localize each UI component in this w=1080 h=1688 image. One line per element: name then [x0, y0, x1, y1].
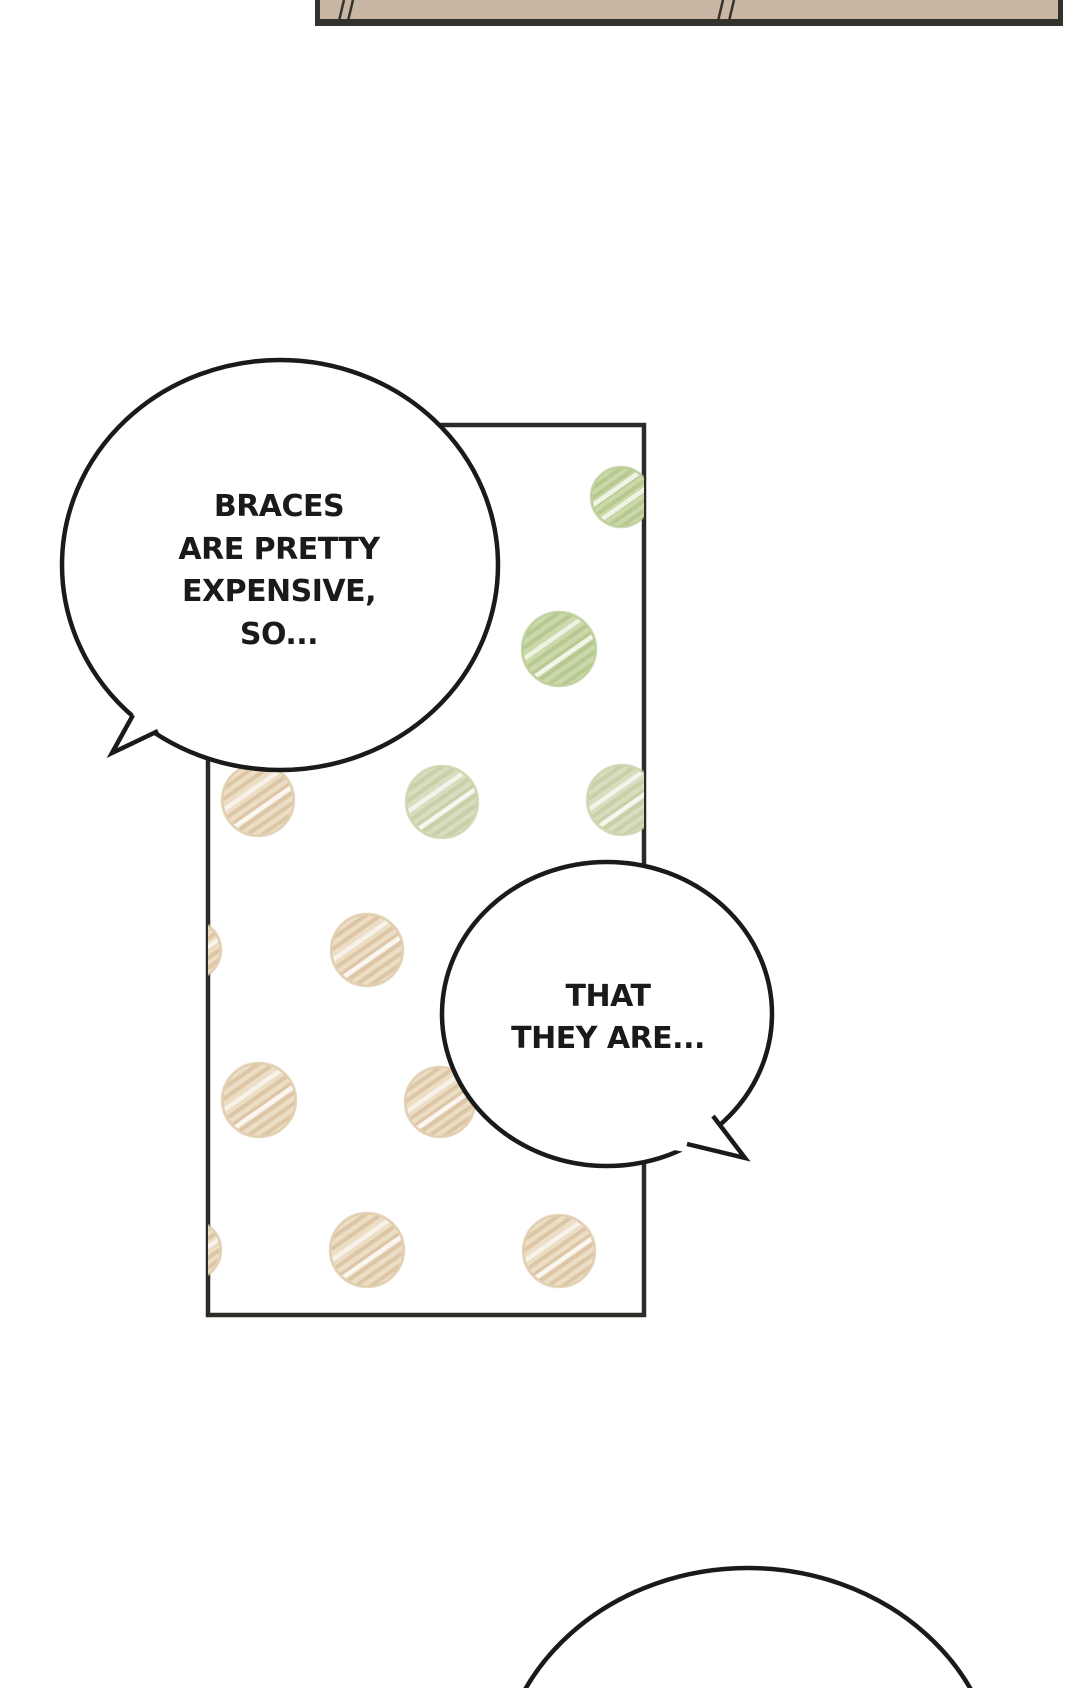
- speech-bubble-reply: THAT THEY ARE...: [442, 862, 772, 1166]
- bubble-text-line: BRACES: [214, 489, 344, 524]
- previous-panel-strip: [315, 0, 1063, 26]
- bubble-outline: [442, 862, 772, 1166]
- bubble-text-line: SO...: [240, 617, 318, 652]
- bubble-text-line: ARE PRETTY: [178, 532, 381, 567]
- comic-art-canvas: BRACES ARE PRETTY EXPENSIVE, SO... THAT …: [0, 0, 1080, 1688]
- speech-bubble-braces: BRACES ARE PRETTY EXPENSIVE, SO...: [62, 360, 498, 770]
- comic-page: BRACES ARE PRETTY EXPENSIVE, SO... THAT …: [0, 0, 1080, 1688]
- bottom-bubble-arc: [498, 1568, 998, 1688]
- bubble-text-line: EXPENSIVE,: [182, 574, 376, 609]
- bubble-text-line: THEY ARE...: [511, 1021, 705, 1056]
- bubble-text-line: THAT: [566, 979, 652, 1014]
